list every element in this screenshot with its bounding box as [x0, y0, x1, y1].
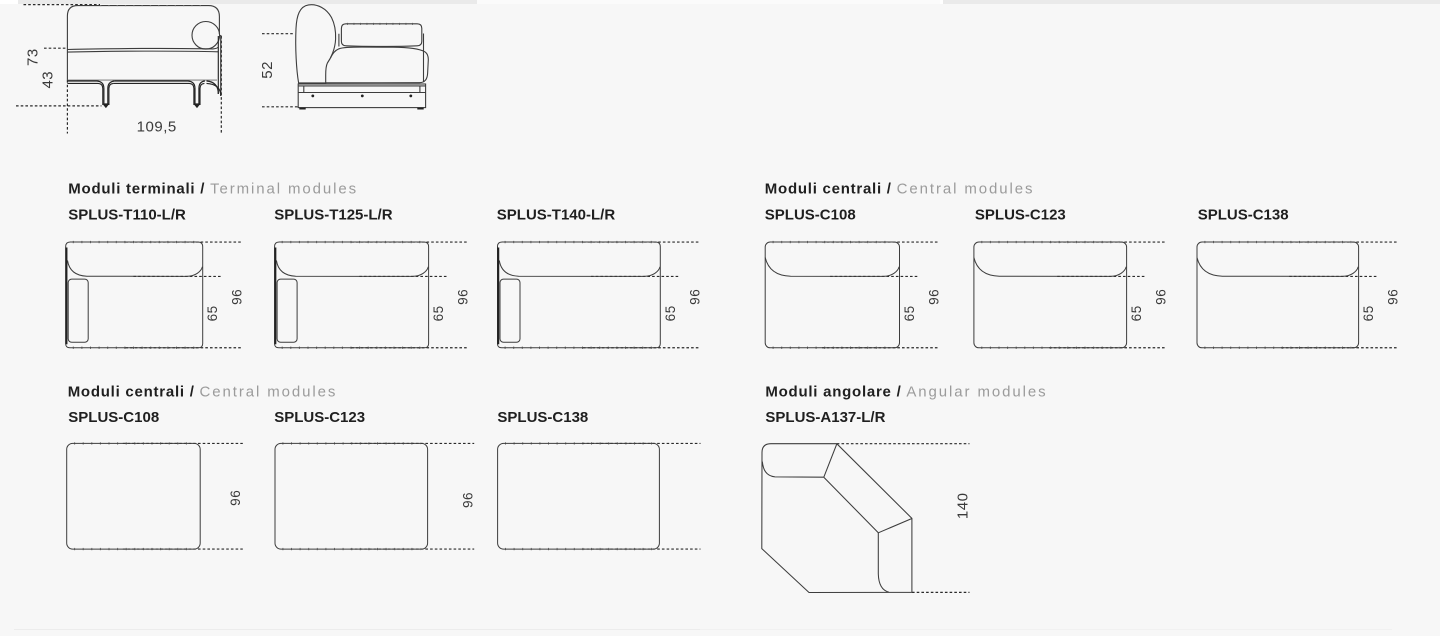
svg-text:SPLUS-C138: SPLUS-C138 [497, 409, 588, 426]
svg-text:SPLUS-C123: SPLUS-C123 [274, 409, 365, 426]
svg-text:73: 73 [25, 48, 42, 66]
svg-text:Moduli angolare / Angular modu: Moduli angolare / Angular modules [765, 383, 1047, 400]
svg-text:Moduli centrali / Central modu: Moduli centrali / Central modules [68, 383, 338, 400]
svg-text:109,5: 109,5 [137, 119, 177, 136]
svg-text:Moduli centrali / Central modu: Moduli centrali / Central modules [765, 181, 1035, 198]
svg-text:65: 65 [1129, 305, 1144, 321]
svg-text:96: 96 [228, 490, 243, 506]
svg-text:SPLUS-T140-L/R: SPLUS-T140-L/R [497, 207, 616, 224]
svg-text:Moduli terminali / Terminal mo: Moduli terminali / Terminal modules [68, 181, 358, 198]
svg-text:96: 96 [926, 289, 941, 305]
svg-text:65: 65 [663, 305, 678, 321]
svg-text:SPLUS-C108: SPLUS-C108 [68, 409, 159, 426]
svg-text:43: 43 [40, 71, 57, 89]
svg-text:65: 65 [902, 305, 917, 321]
svg-text:65: 65 [1361, 305, 1376, 321]
svg-text:SPLUS-C123: SPLUS-C123 [975, 207, 1066, 224]
svg-text:SPLUS-C108: SPLUS-C108 [765, 207, 856, 224]
svg-text:SPLUS-C138: SPLUS-C138 [1198, 207, 1289, 224]
svg-text:SPLUS-T110-L/R: SPLUS-T110-L/R [68, 207, 186, 224]
svg-text:52: 52 [259, 61, 276, 79]
svg-text:96: 96 [461, 492, 476, 508]
svg-text:96: 96 [456, 289, 471, 305]
svg-text:SPLUS-A137-L/R: SPLUS-A137-L/R [765, 409, 885, 426]
svg-text:96: 96 [230, 289, 245, 305]
svg-text:65: 65 [205, 305, 220, 321]
svg-text:65: 65 [431, 305, 446, 321]
svg-text:96: 96 [1386, 289, 1401, 305]
svg-text:SPLUS-T125-L/R: SPLUS-T125-L/R [274, 207, 393, 224]
svg-text:140: 140 [954, 493, 971, 520]
svg-text:96: 96 [1154, 289, 1169, 305]
svg-text:96: 96 [687, 289, 702, 305]
